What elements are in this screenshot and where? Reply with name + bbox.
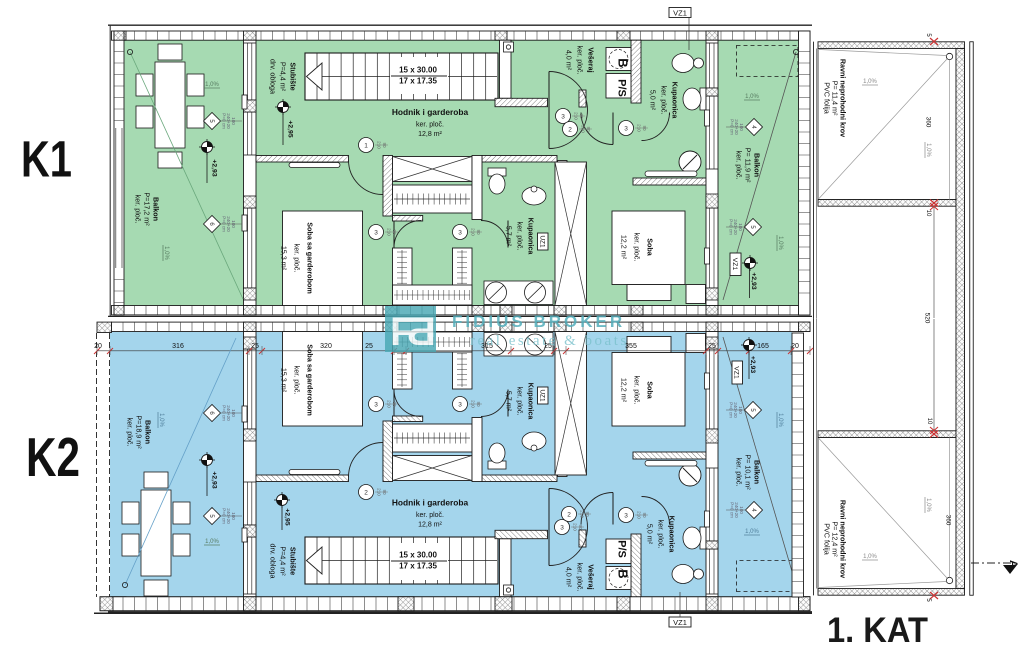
svg-text:Balkon: Balkon: [143, 420, 152, 444]
svg-text:360: 360: [945, 515, 952, 526]
svg-text:1. KAT: 1. KAT: [827, 611, 928, 650]
svg-text:17 x 17.35: 17 x 17.35: [399, 77, 437, 86]
svg-text:2: 2: [567, 511, 571, 518]
svg-text:+2,95: +2,95: [284, 508, 291, 525]
svg-text:P/S: P/S: [616, 79, 628, 97]
svg-text:ker. ploč.: ker. ploč.: [125, 418, 134, 447]
svg-text:1,0%: 1,0%: [163, 246, 169, 260]
svg-text:Balkon: Balkon: [151, 197, 160, 221]
svg-text:25: 25: [251, 343, 259, 350]
svg-text:Vešeraj: Vešeraj: [586, 47, 595, 72]
svg-text:PVC folija: PVC folija: [822, 82, 831, 114]
svg-text:10: 10: [926, 418, 932, 425]
svg-text:3: 3: [458, 229, 462, 236]
svg-text:Soba sa garderobom: Soba sa garderobom: [305, 344, 314, 416]
svg-text:12,8 m²: 12,8 m²: [418, 522, 442, 529]
svg-text:Kupaonica: Kupaonica: [670, 82, 679, 120]
svg-text:5,7 m²: 5,7 m²: [504, 391, 513, 412]
svg-text:real estate & boats: real estate & boats: [470, 333, 629, 349]
svg-text:12,2 m²: 12,2 m²: [619, 378, 628, 403]
svg-text:P=17,2 m²: P=17,2 m²: [142, 192, 151, 226]
svg-text:K1: K1: [21, 131, 72, 188]
svg-text:1,0%: 1,0%: [745, 529, 759, 535]
svg-text:P= 10,1 m²: P= 10,1 m²: [743, 454, 752, 490]
svg-text:1,0%: 1,0%: [777, 236, 783, 250]
svg-text:520: 520: [924, 313, 931, 324]
svg-text:4,0 m²: 4,0 m²: [564, 567, 573, 588]
svg-text:3: 3: [624, 125, 628, 132]
svg-text:1,0%: 1,0%: [205, 539, 219, 545]
svg-text:ker. ploč.: ker. ploč.: [292, 244, 301, 273]
svg-text:ker. ploč.: ker. ploč.: [133, 195, 142, 224]
svg-text:VZ1: VZ1: [731, 258, 738, 271]
svg-text:ker. ploč.: ker. ploč.: [515, 222, 524, 251]
svg-text:165: 165: [757, 343, 769, 350]
svg-text:Hodnik i garderoba: Hodnik i garderoba: [392, 497, 469, 507]
svg-text:1,0%: 1,0%: [205, 82, 219, 88]
svg-text:+2,93: +2,93: [750, 272, 757, 289]
svg-text:5,0 m²: 5,0 m²: [645, 524, 654, 545]
svg-text:Balkon: Balkon: [752, 460, 761, 484]
svg-text:FIDIUS BROKER: FIDIUS BROKER: [452, 312, 625, 331]
svg-text:3: 3: [560, 524, 564, 531]
svg-text:12,2 m²: 12,2 m²: [619, 235, 628, 260]
svg-text:ker. ploč.: ker. ploč.: [575, 563, 584, 592]
svg-text:P=4,4 m²: P=4,4 m²: [278, 62, 287, 92]
svg-text:Ƌ: Ƌ: [407, 310, 436, 354]
svg-text:1,0%: 1,0%: [863, 554, 877, 560]
svg-text:VZ1: VZ1: [673, 618, 687, 627]
svg-text:ker. ploč.: ker. ploč.: [659, 86, 668, 115]
svg-text:A: A: [1007, 560, 1019, 568]
svg-text:VZ1: VZ1: [673, 9, 687, 18]
svg-text:ker. ploč.: ker. ploč.: [292, 366, 301, 395]
svg-text:ker. ploč.: ker. ploč.: [632, 376, 641, 405]
svg-text:+2,93: +2,93: [211, 159, 218, 176]
svg-text:PVC folija: PVC folija: [822, 523, 831, 555]
svg-text:ker. ploč.: ker. ploč.: [575, 46, 584, 75]
svg-text:B: B: [616, 58, 631, 67]
svg-text:12,8 m²: 12,8 m²: [418, 131, 442, 138]
svg-text:1,0%: 1,0%: [777, 413, 783, 427]
svg-text:1,0%: 1,0%: [863, 79, 877, 85]
svg-text:B: B: [616, 569, 631, 578]
svg-text:25: 25: [708, 343, 716, 350]
svg-text:15 x 30.00: 15 x 30.00: [399, 551, 437, 560]
svg-text:P=18,9 m²: P=18,9 m²: [134, 415, 143, 449]
svg-text:15,3 m²: 15,3 m²: [279, 368, 288, 393]
svg-text:Balkon: Balkon: [752, 153, 761, 177]
svg-text:1,0%: 1,0%: [925, 143, 931, 157]
svg-text:UZ1: UZ1: [539, 389, 546, 402]
svg-text:+2,93: +2,93: [211, 471, 218, 488]
svg-text:15 x 30.00: 15 x 30.00: [399, 66, 437, 75]
svg-text:360: 360: [925, 117, 932, 128]
svg-text:VZ1: VZ1: [733, 366, 740, 379]
svg-text:3: 3: [624, 512, 628, 519]
svg-text:Hodnik i garderoba: Hodnik i garderoba: [392, 107, 469, 117]
svg-text:20: 20: [94, 343, 102, 350]
svg-text:ker. ploč.: ker. ploč.: [734, 151, 743, 180]
svg-text:Stubište: Stubište: [289, 547, 298, 575]
svg-text:Kupaonica: Kupaonica: [667, 516, 676, 554]
svg-text:K2: K2: [26, 426, 80, 488]
svg-text:ker. ploč.: ker. ploč.: [515, 387, 524, 416]
svg-text:ker. ploč.: ker. ploč.: [656, 520, 665, 549]
svg-text:15,3 m²: 15,3 m²: [279, 246, 288, 271]
svg-text:Soba sa garderobom: Soba sa garderobom: [305, 222, 314, 294]
svg-text:1,0%: 1,0%: [925, 498, 931, 512]
svg-text:2: 2: [568, 126, 572, 133]
svg-text:1,0%: 1,0%: [158, 413, 164, 427]
svg-text:drv. obloga: drv. obloga: [268, 59, 277, 94]
svg-text:3: 3: [374, 229, 378, 236]
svg-text:ker. ploč.: ker. ploč.: [632, 233, 641, 262]
svg-text:320: 320: [320, 343, 332, 350]
svg-text:ker. ploč.: ker. ploč.: [734, 458, 743, 487]
svg-text:20: 20: [791, 343, 799, 350]
svg-text:Soba: Soba: [645, 381, 654, 400]
svg-text:1,0%: 1,0%: [745, 94, 759, 100]
svg-text:Stubište: Stubište: [289, 62, 298, 90]
svg-text:25: 25: [365, 343, 373, 350]
svg-text:Kupaonica: Kupaonica: [526, 383, 535, 421]
svg-text:17 x 17.35: 17 x 17.35: [399, 562, 437, 571]
svg-text:Kupaonica: Kupaonica: [526, 218, 535, 256]
svg-text:3: 3: [374, 401, 378, 408]
svg-text:P= 11,9 m²: P= 11,9 m²: [743, 148, 752, 183]
svg-text:3: 3: [561, 113, 565, 120]
svg-text:drv. obloga: drv. obloga: [268, 543, 277, 578]
svg-text:ker. ploč.: ker. ploč.: [416, 122, 444, 129]
svg-text:3: 3: [458, 401, 462, 408]
svg-text:+2,93: +2,93: [749, 356, 756, 373]
svg-text:1: 1: [364, 142, 368, 149]
svg-text:ker. ploč.: ker. ploč.: [416, 512, 444, 519]
svg-text:5,7 m²: 5,7 m²: [504, 226, 513, 247]
svg-text:316: 316: [172, 343, 184, 350]
svg-text:P/S: P/S: [616, 540, 628, 558]
svg-text:Soba: Soba: [645, 238, 654, 257]
svg-text:Vešeraj: Vešeraj: [586, 564, 595, 589]
svg-text:+2,95: +2,95: [287, 120, 294, 137]
svg-text:5,0 m²: 5,0 m²: [648, 90, 657, 111]
svg-text:4,0 m²: 4,0 m²: [564, 50, 573, 71]
svg-text:P=4,4 m²: P=4,4 m²: [278, 546, 287, 576]
svg-text:UZ1: UZ1: [539, 235, 546, 248]
svg-text:2: 2: [364, 489, 368, 496]
svg-text:10: 10: [925, 210, 931, 217]
